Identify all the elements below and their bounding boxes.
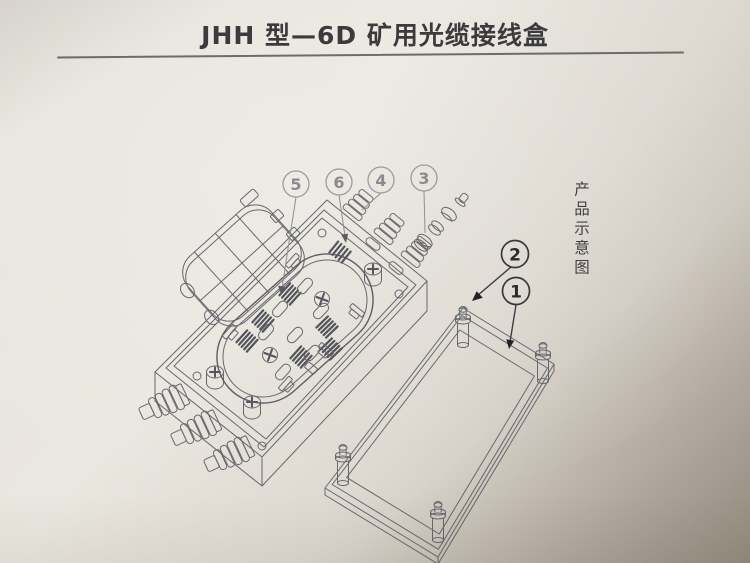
- hex-standoff: [365, 263, 382, 286]
- callout-3: 3: [411, 165, 437, 233]
- cable-gland-port: [201, 434, 256, 478]
- callout-1: 1: [503, 278, 530, 350]
- enclosure-wall-right: [262, 281, 427, 486]
- gland-part-ring: [427, 219, 445, 237]
- callout-number: 3: [418, 169, 429, 188]
- lid-hinge-clip: [270, 209, 284, 223]
- standoff-bolt: [456, 307, 471, 348]
- tray-slot: [274, 362, 293, 381]
- callout-number: 1: [510, 283, 522, 303]
- leader-line: [424, 191, 425, 233]
- rim-slot: [388, 260, 405, 276]
- callout-number: 4: [375, 171, 386, 190]
- lid-bump: [178, 281, 198, 301]
- leader-line: [339, 195, 345, 236]
- standoff-bolt: [536, 343, 551, 384]
- leader-line: [362, 193, 381, 210]
- cover-lid: [162, 185, 316, 336]
- callout-4: 4: [362, 167, 394, 210]
- exploded-diagram: 5 6 4 3 2 1: [0, 0, 750, 563]
- splice-holder-coil: [236, 330, 257, 351]
- plate-rim: [332, 316, 547, 550]
- splice-holder-coil: [316, 316, 337, 337]
- enclosure-rim-inner2: [174, 218, 408, 439]
- rim-hole: [193, 372, 201, 380]
- rim-hole: [318, 229, 326, 237]
- callout-5: 5: [278, 171, 309, 294]
- callout-number: 6: [333, 173, 344, 192]
- tray-slot: [271, 299, 290, 318]
- photo-page: JHH 型—6D 矿用光缆接线盒 产品示意图: [0, 0, 750, 563]
- cable-gland-port: [136, 382, 191, 426]
- gland-part-plug: [454, 191, 471, 208]
- base-plate: [325, 308, 554, 563]
- arrowhead: [506, 339, 514, 349]
- standoff-bolt: [431, 502, 446, 543]
- lid-bump: [202, 307, 222, 327]
- tray-slot: [286, 325, 305, 344]
- tray-slot: [296, 276, 315, 295]
- cable-gland-port: [168, 408, 223, 452]
- gland-part-cap: [439, 205, 459, 223]
- callout-number: 5: [290, 175, 301, 194]
- callout-number: 2: [509, 246, 521, 266]
- leader-line: [510, 305, 516, 342]
- screw-head: [263, 348, 278, 363]
- tray-clip: [285, 253, 303, 272]
- enclosure-wall-left: [155, 372, 262, 486]
- gland-nut: [373, 211, 407, 246]
